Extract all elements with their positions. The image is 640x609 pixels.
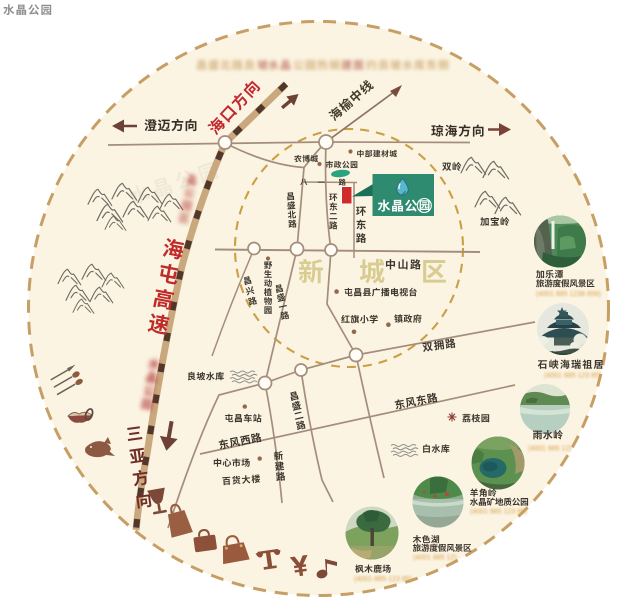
svg-text:(4001-885-123 85): (4001-885-123 85) [354, 576, 412, 583]
svg-text:(4001 885 1238 856): (4001 885 1238 856) [536, 291, 601, 298]
svg-text:(4001 885 12): (4001 885 12) [413, 555, 457, 562]
svg-text:(4001 885 123 85): (4001 885 123 85) [470, 509, 527, 516]
svg-text:(4001 885 123 85): (4001 885 123 85) [544, 373, 601, 380]
svg-text:(4001 885 12): (4001 885 12) [528, 446, 572, 453]
